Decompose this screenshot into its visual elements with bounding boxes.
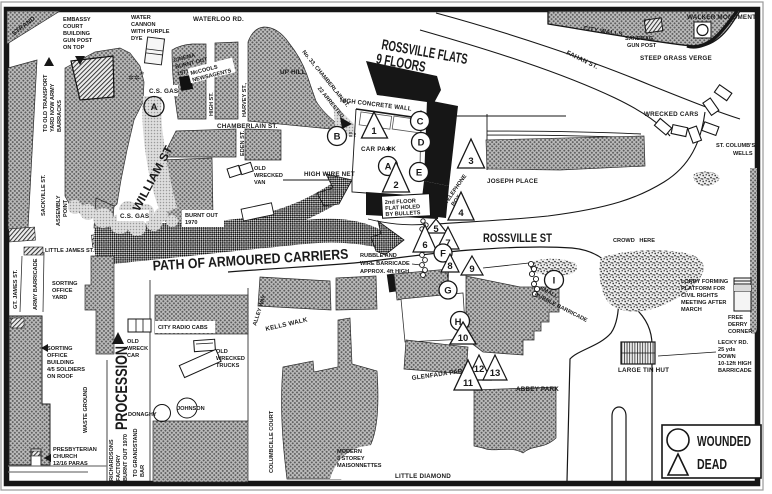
- svg-text:WRECKED: WRECKED: [216, 356, 245, 362]
- svg-text:12: 12: [474, 364, 485, 375]
- svg-text:ABBEY PARK: ABBEY PARK: [516, 386, 559, 393]
- svg-text:DERRY: DERRY: [728, 322, 748, 328]
- svg-text:WRECK: WRECK: [127, 346, 148, 352]
- svg-text:PRESBYTERIAN: PRESBYTERIAN: [53, 447, 97, 453]
- svg-text:EMBASSY: EMBASSY: [63, 17, 91, 23]
- svg-text:HIGH ST.: HIGH ST.: [209, 92, 215, 116]
- svg-text:MARCH: MARCH: [681, 307, 702, 313]
- svg-text:3 STOREY: 3 STOREY: [337, 456, 365, 462]
- svg-text:B: B: [334, 132, 341, 143]
- svg-text:PLATFORM FOR: PLATFORM FOR: [681, 286, 725, 292]
- svg-text:JOHNSON: JOHNSON: [177, 406, 205, 412]
- svg-text:WELLS: WELLS: [733, 151, 753, 157]
- svg-text:LORRY FORMING: LORRY FORMING: [681, 279, 728, 285]
- svg-text:SORTING: SORTING: [52, 281, 77, 287]
- svg-text:LITTLE DIAMOND: LITTLE DIAMOND: [395, 473, 451, 480]
- svg-text:FACTORY: FACTORY: [116, 454, 122, 481]
- svg-text:TO OLD TRANSPORT: TO OLD TRANSPORT: [43, 74, 49, 132]
- svg-text:TO GRANDSTAND: TO GRANDSTAND: [133, 428, 139, 477]
- svg-text:LARGE TIN HUT: LARGE TIN HUT: [618, 367, 669, 374]
- svg-text:CORNER: CORNER: [728, 329, 752, 335]
- svg-text:OLD: OLD: [127, 339, 139, 345]
- svg-text:BAR: BAR: [140, 465, 146, 477]
- svg-text:BUILDING: BUILDING: [63, 31, 90, 37]
- svg-text:10: 10: [458, 333, 469, 344]
- svg-text:MEETING AFTER: MEETING AFTER: [681, 300, 726, 306]
- svg-text:CIVIL RIGHTS: CIVIL RIGHTS: [681, 293, 718, 299]
- svg-text:BURNT OUT 1970: BURNT OUT 1970: [123, 434, 129, 481]
- svg-text:DONAGHY: DONAGHY: [128, 412, 157, 418]
- svg-text:✲✲: ✲✲: [128, 74, 140, 82]
- svg-text:10-12ft HIGH: 10-12ft HIGH: [718, 361, 752, 367]
- svg-text:G: G: [444, 286, 451, 297]
- svg-text:GUN POST: GUN POST: [627, 43, 657, 49]
- svg-text:12/16 PARAS: 12/16 PARAS: [53, 461, 88, 467]
- svg-text:C.S. GAS: C.S. GAS: [120, 213, 149, 220]
- svg-text:COLUMBCILLE COURT: COLUMBCILLE COURT: [269, 410, 275, 473]
- svg-text:BURNT OUT: BURNT OUT: [185, 213, 219, 219]
- svg-text:OFFICE: OFFICE: [47, 353, 68, 359]
- svg-text:ASSEMBLY: ASSEMBLY: [56, 195, 62, 226]
- svg-text:OLD: OLD: [216, 349, 228, 355]
- svg-text:ON TOP: ON TOP: [63, 45, 85, 51]
- svg-text:ROSSVILLE ST: ROSSVILLE ST: [483, 233, 552, 245]
- svg-text:CROWD HERE: CROWD HERE: [613, 238, 655, 244]
- svg-text:13: 13: [490, 368, 501, 379]
- svg-text:1970: 1970: [185, 220, 197, 226]
- svg-text:25 yds: 25 yds: [718, 347, 735, 353]
- svg-text:WALKER MONUMENT: WALKER MONUMENT: [687, 14, 756, 21]
- svg-text:OFFICE: OFFICE: [52, 288, 73, 294]
- svg-text:JOSEPH PLACE: JOSEPH PLACE: [487, 178, 538, 185]
- svg-text:E: E: [416, 168, 422, 179]
- svg-text:4: 4: [458, 208, 464, 219]
- svg-text:YARD NOW ARMY: YARD NOW ARMY: [50, 83, 56, 132]
- svg-text:DYE: DYE: [131, 36, 143, 42]
- svg-text:HARVEY ST.,: HARVEY ST.,: [242, 82, 248, 117]
- svg-text:C: C: [417, 117, 424, 128]
- svg-text:FREE: FREE: [728, 315, 743, 321]
- svg-text:POINT: POINT: [63, 199, 69, 217]
- svg-text:HIGH WIRE NET: HIGH WIRE NET: [304, 171, 355, 178]
- svg-text:MAISONNETTES: MAISONNETTES: [337, 463, 382, 469]
- svg-text:9: 9: [469, 264, 474, 275]
- svg-text:D: D: [418, 138, 425, 149]
- svg-text:RICHARDSONS: RICHARDSONS: [109, 439, 115, 481]
- svg-text:LECKY RD.: LECKY RD.: [718, 340, 748, 346]
- svg-text:A: A: [385, 162, 392, 173]
- svg-text:CHURCH: CHURCH: [53, 454, 77, 460]
- svg-text:WIRE BARRICADE: WIRE BARRICADE: [360, 261, 410, 267]
- svg-text:CITY RADIO CABS: CITY RADIO CABS: [158, 325, 208, 331]
- svg-text:SANDBAG.: SANDBAG.: [625, 36, 655, 42]
- svg-text:YARD: YARD: [52, 295, 67, 301]
- svg-text:CANNON: CANNON: [131, 22, 156, 28]
- svg-text:WRECKED CARS: WRECKED CARS: [644, 111, 699, 118]
- svg-text:OLD: OLD: [254, 166, 266, 172]
- svg-text:DEAD: DEAD: [697, 456, 727, 473]
- svg-text:4/5 SOLDIERS: 4/5 SOLDIERS: [47, 367, 85, 373]
- svg-text:TRUCKS: TRUCKS: [216, 363, 240, 369]
- svg-text:3: 3: [468, 156, 473, 167]
- svg-text:WASTE GROUND: WASTE GROUND: [83, 387, 89, 433]
- svg-text:8: 8: [447, 261, 452, 272]
- svg-text:WATERLOO RD.: WATERLOO RD.: [193, 16, 244, 23]
- svg-text:1: 1: [371, 126, 377, 137]
- svg-text:11: 11: [463, 378, 474, 389]
- svg-text:APPROX. 4ft HIGH: APPROX. 4ft HIGH: [360, 269, 409, 275]
- svg-text:✲: ✲: [140, 71, 144, 77]
- svg-text:GUN POST: GUN POST: [63, 38, 93, 44]
- svg-text:CHAMBERLAIN ST.: CHAMBERLAIN ST.: [217, 123, 278, 130]
- svg-text:C.S. GAS: C.S. GAS: [149, 88, 178, 95]
- svg-text:COURT: COURT: [63, 24, 83, 30]
- svg-text:ON ROOF: ON ROOF: [47, 374, 74, 380]
- svg-text:STEEP GRASS VERGE: STEEP GRASS VERGE: [640, 55, 712, 62]
- svg-text:UP HILL: UP HILL: [280, 69, 306, 76]
- svg-text:SORTING: SORTING: [47, 346, 72, 352]
- svg-text:BARRICADE: BARRICADE: [718, 368, 752, 374]
- svg-text:CAR: CAR: [127, 353, 139, 359]
- svg-text:VAN: VAN: [254, 180, 265, 186]
- svg-text:MODERN: MODERN: [337, 449, 362, 455]
- svg-text:LITTLE JAMES ST.: LITTLE JAMES ST.: [45, 248, 94, 254]
- svg-text:2: 2: [393, 180, 398, 191]
- svg-text:WITH PURPLE: WITH PURPLE: [131, 29, 170, 35]
- svg-text:WOUNDED: WOUNDED: [697, 433, 751, 450]
- svg-text:BARRACKS: BARRACKS: [57, 100, 63, 132]
- svg-text:GT. JAMES ST.: GT. JAMES ST.: [13, 269, 19, 309]
- svg-text:CAR PA✱K: CAR PA✱K: [361, 146, 396, 153]
- svg-text:I: I: [553, 276, 556, 287]
- svg-text:WRECKED: WRECKED: [254, 173, 283, 179]
- svg-text:6: 6: [422, 240, 427, 251]
- svg-text:DOWN: DOWN: [718, 354, 736, 360]
- svg-text:RUBBLE AND: RUBBLE AND: [360, 253, 397, 259]
- svg-text:EDEN ST.: EDEN ST.: [240, 130, 246, 156]
- svg-text:5: 5: [433, 224, 439, 235]
- svg-text:ST. COLUMB'S: ST. COLUMB'S: [716, 143, 756, 149]
- svg-text:ARMY BARRICADE: ARMY BARRICADE: [33, 258, 39, 310]
- svg-text:F: F: [440, 249, 446, 260]
- svg-text:SACKVILLE ST.: SACKVILLE ST.: [41, 174, 47, 216]
- svg-text:A: A: [151, 102, 158, 113]
- svg-text:WATER: WATER: [131, 15, 151, 21]
- svg-text:BUILDING: BUILDING: [47, 360, 74, 366]
